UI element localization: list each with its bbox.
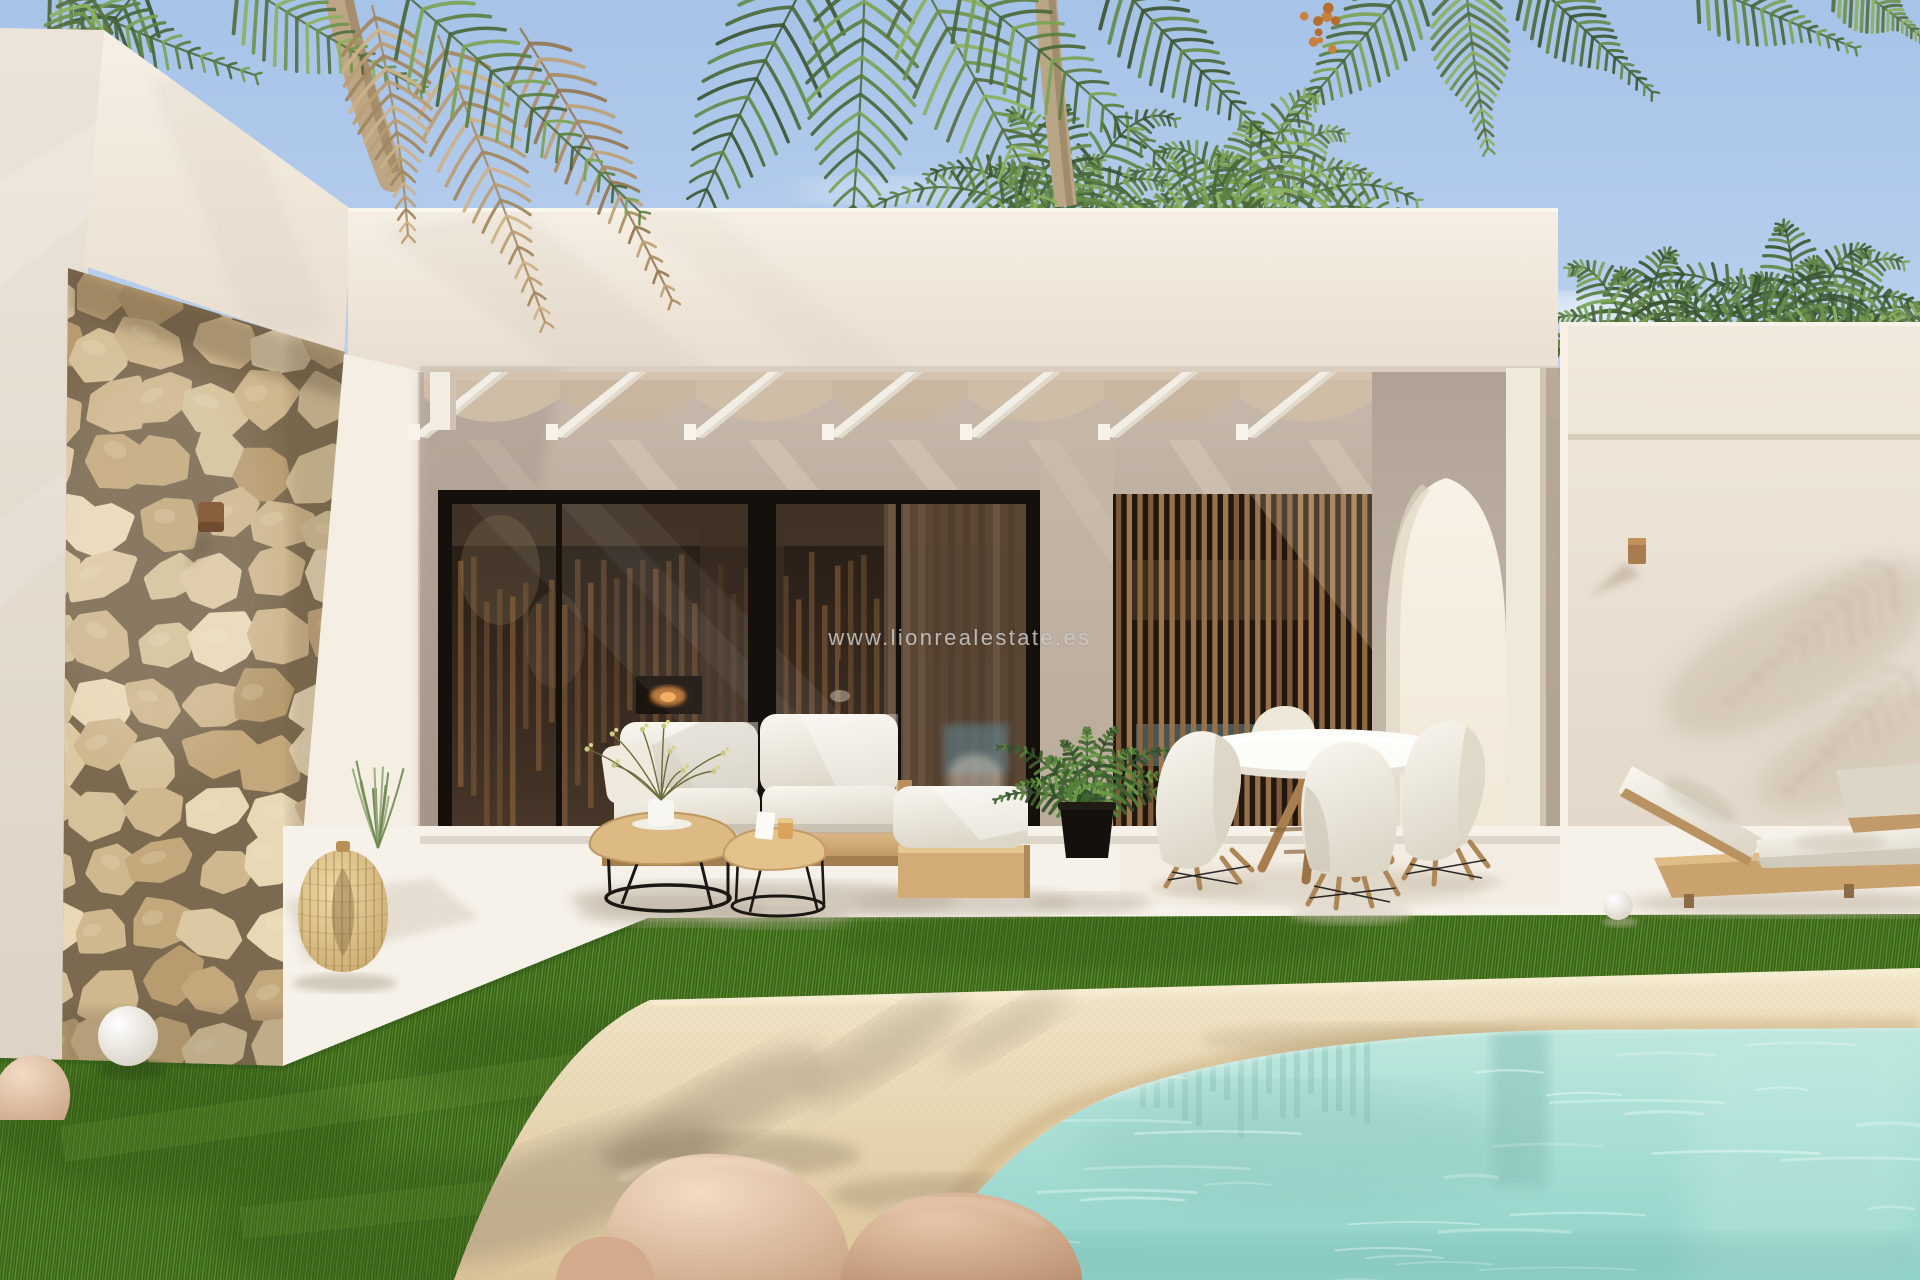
villa-pool-render: www.lionrealestate.es <box>0 0 1920 1280</box>
menu-card <box>755 811 776 840</box>
vase <box>648 799 674 826</box>
dining-set <box>1150 706 1503 924</box>
watermark: www.lionrealestate.es <box>828 627 1091 649</box>
coffee-table-top-small <box>724 828 826 870</box>
plant-pot <box>1060 806 1114 858</box>
